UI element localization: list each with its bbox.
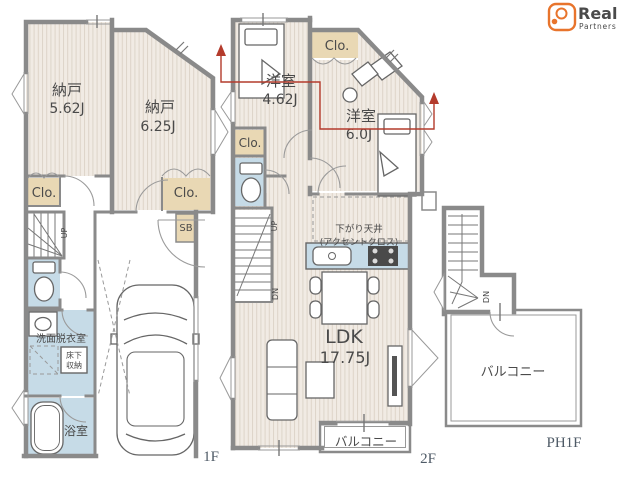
room-label-western2: 洋室 [346,107,376,125]
accent-cross-label: (アクセントクロス) [320,237,399,248]
washroom-label: 洗面脱衣室 [36,332,86,345]
tv-stand-icon [388,346,402,406]
stairs-down-label: DN [271,288,280,300]
balcony-label-ph: バルコニー [481,365,546,380]
area-label-ldk: 17.75J [320,348,371,367]
side-table-icon [306,362,334,398]
toilet1-icon [33,262,55,301]
floor-1f: 納戸 5.62J 納戸 6.25J Clo. Clo. SB 洗面脱衣室 床下 … [12,15,228,465]
window-marker [221,92,231,122]
room-label-western1: 洋室 [266,72,296,90]
stairs-down-label: DN [482,291,491,303]
underfloor-label-1: 床下 [66,350,82,360]
closet-label: Clo. [239,136,262,150]
door-arc [64,176,94,206]
room-label-storage1: 納戸 [52,81,82,99]
bathtub-icon [31,402,63,454]
window-marker [424,130,432,154]
window-marker [215,110,228,154]
toilet2-icon [240,163,262,202]
floor-2f: 洋室 4.62J Clo. 洋室 6.0J Clo. 下がり天井 (アクセントク… [220,13,438,467]
room-label-ldk: LDK [325,326,363,348]
stairs-1f [28,212,64,258]
window-marker [412,330,438,386]
stairs-up-label: UP [270,220,279,231]
area-label-storage2: 6.25J [140,119,175,135]
area-label-western1: 4.62J [262,92,297,108]
storage1-floor [26,22,112,176]
window-marker [220,356,231,400]
floor-label-ph1f: PH1F [546,435,581,451]
window-marker [12,390,24,426]
bed-icon [378,114,416,196]
brand-logo: Real Partners [549,4,617,31]
door-arc [60,272,86,298]
dropped-ceiling-label: 下がり天井 [335,223,383,235]
brand-tagline: Partners [579,22,617,31]
brand-logo-icon [549,4,575,30]
shoe-box-label: SB [179,223,192,234]
brand-name: Real [578,4,617,23]
window-marker [12,74,24,114]
section-arrow-icon [429,92,439,104]
floor-plan-page: 納戸 5.62J 納戸 6.25J Clo. Clo. SB 洗面脱衣室 床下 … [0,0,618,497]
window-marker [434,274,444,310]
room-label-storage2: 納戸 [145,98,175,116]
closet-label: Clo. [174,186,199,201]
floor-plan-canvas: 納戸 5.62J 納戸 6.25J Clo. Clo. SB 洗面脱衣室 床下 … [0,0,618,497]
underfloor-label-2: 収納 [66,360,82,370]
balcony-label-2f: バルコニー [335,434,397,449]
area-label-storage1: 5.62J [49,101,84,117]
bathroom-label: 浴室 [64,423,88,438]
window-marker [424,102,432,126]
floor-label-2f: 2F [420,451,436,467]
section-arrow-icon [216,44,226,56]
floor-label-1f: 1F [203,449,219,465]
sofa-icon [267,340,297,420]
closet-label: Clo. [325,39,350,54]
vanity-icon [29,312,57,336]
stairs-up-label: UP [60,227,69,238]
closet-label: Clo. [32,186,57,201]
floor-ph1f: DN バルコニー PH1F [434,206,582,451]
